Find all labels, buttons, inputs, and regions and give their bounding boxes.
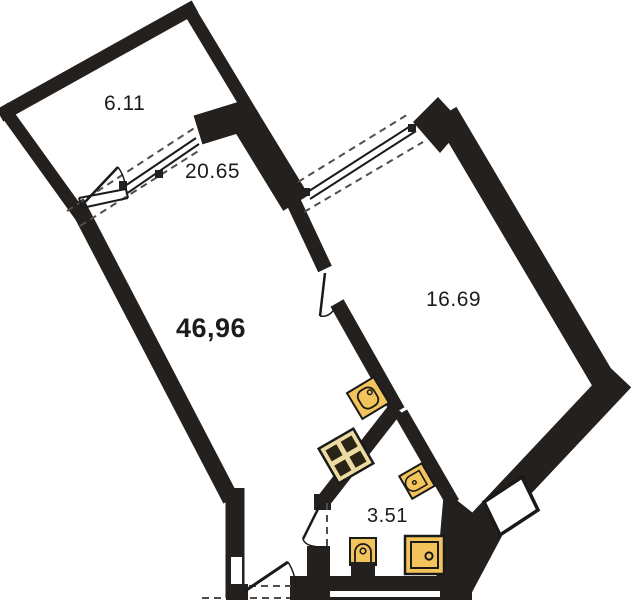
interior-door bbox=[320, 273, 336, 316]
interior-wall-living-bedroom bbox=[294, 203, 398, 411]
washing-machine-icon bbox=[405, 536, 444, 574]
room-label-bathroom: 3.51 bbox=[367, 506, 408, 526]
left-exterior-wall bbox=[80, 210, 242, 598]
total-area-label: 46,96 bbox=[176, 315, 246, 342]
top-center-wall bbox=[198, 114, 296, 203]
room-label-balcony: 6.11 bbox=[104, 93, 145, 114]
right-exterior-wall bbox=[436, 124, 610, 596]
bedroom-window bbox=[298, 113, 423, 212]
wall-niche bbox=[231, 557, 242, 584]
room-label-bedroom: 16.69 bbox=[426, 289, 481, 310]
toilet-icon bbox=[350, 538, 376, 578]
floor-plan-drawing bbox=[0, 0, 638, 600]
entrance-door bbox=[245, 562, 296, 591]
floor-plan: 6.11 20.65 46,96 16.69 3.51 bbox=[0, 0, 638, 600]
room-label-living-room: 20.65 bbox=[185, 161, 240, 182]
